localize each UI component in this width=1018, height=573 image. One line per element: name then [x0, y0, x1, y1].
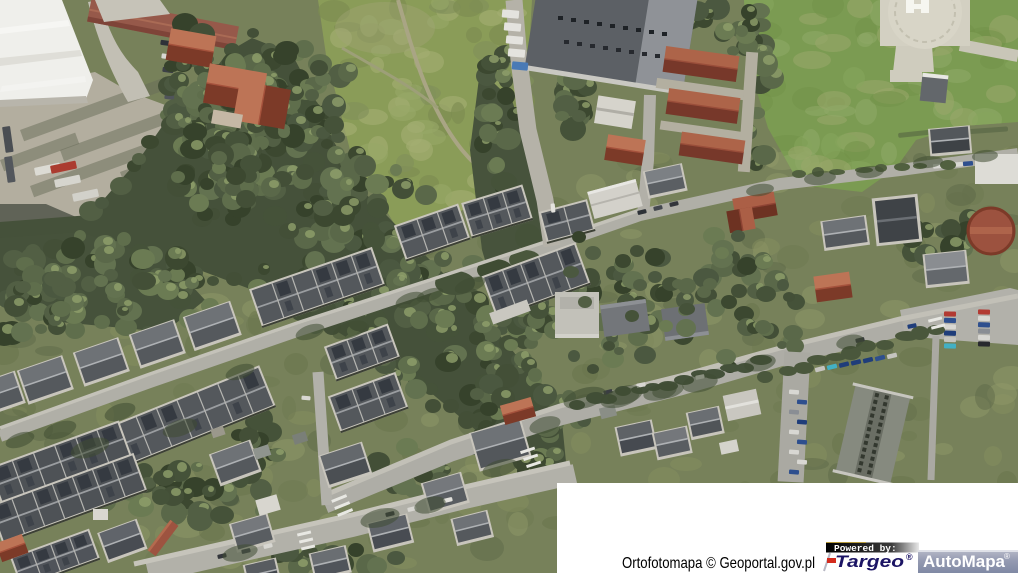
svg-text:Ortofotomapa © Geoportal.gov.p: Ortofotomapa © Geoportal.gov.pl [622, 555, 815, 572]
svg-text:®: ® [1004, 552, 1010, 561]
svg-text:®: ® [906, 552, 913, 562]
svg-text:AutoMapa: AutoMapa [923, 552, 1006, 571]
svg-text:Targeo: Targeo [835, 552, 904, 571]
